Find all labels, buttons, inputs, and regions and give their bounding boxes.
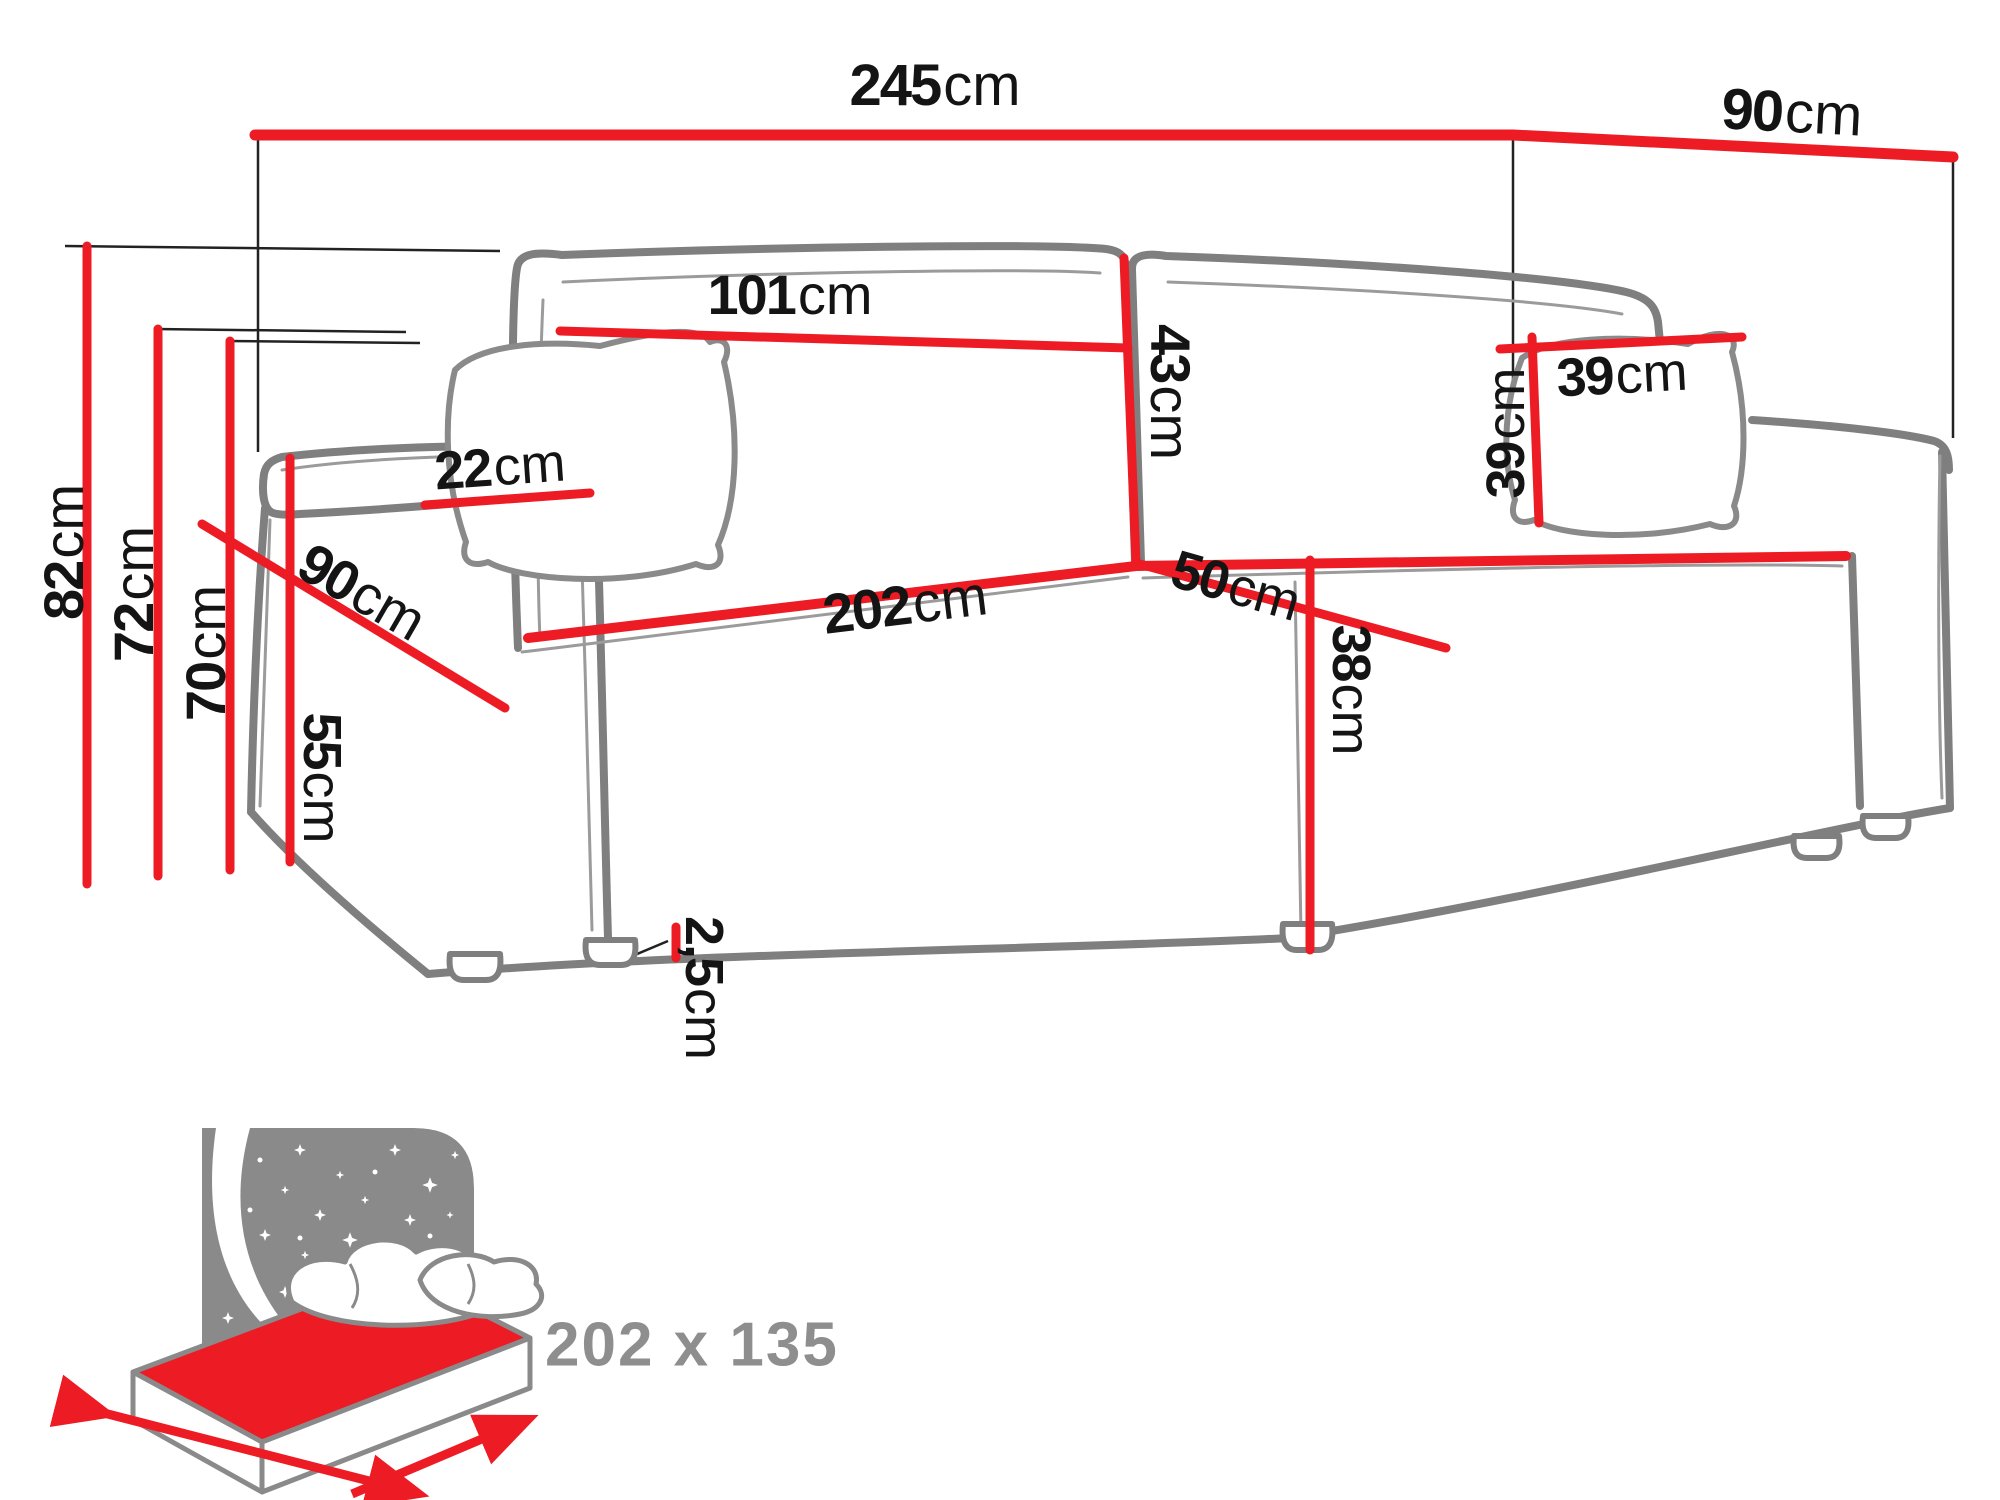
bed-icon xyxy=(133,1240,542,1492)
throw-pillows xyxy=(448,332,1744,579)
diagram-canvas: 202 x 135 245cm90cm101cm43cm39cm39cm22cm… xyxy=(0,0,2000,1500)
sofa-diagram-art xyxy=(0,0,2000,1500)
sleeping-function-icon xyxy=(100,1128,542,1494)
sofa-legs xyxy=(450,816,1909,980)
left-pillow xyxy=(448,332,735,579)
construction-lines xyxy=(65,135,1953,957)
dimension-lines xyxy=(87,135,1953,958)
